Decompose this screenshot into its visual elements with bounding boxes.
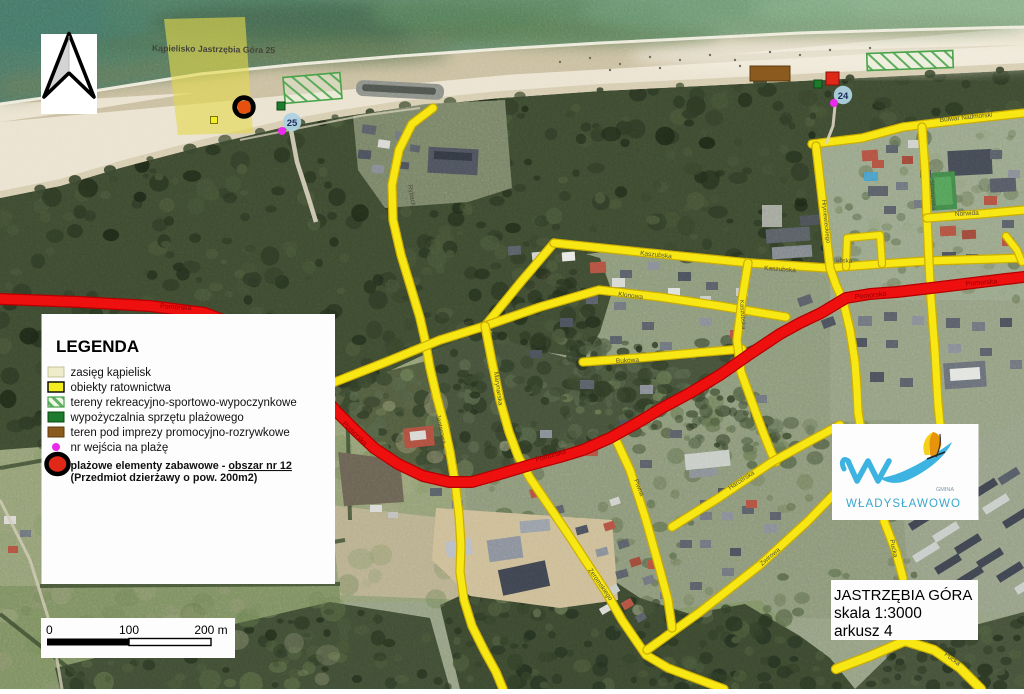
svg-text:skala 1:3000: skala 1:3000 (834, 605, 922, 622)
svg-text:zasięg kąpielisk: zasięg kąpielisk (71, 367, 152, 379)
svg-text:WŁADYSŁAWOWO: WŁADYSŁAWOWO (846, 498, 961, 510)
svg-text:JASTRZĘBIA GÓRA: JASTRZĘBIA GÓRA (834, 587, 972, 604)
svg-text:GMINA: GMINA (936, 487, 954, 493)
svg-text:100: 100 (119, 623, 139, 637)
svg-text:24: 24 (838, 91, 849, 102)
svg-text:LEGENDA: LEGENDA (56, 337, 139, 356)
svg-text:tereny rekreacyjno-sportowo-wy: tereny rekreacyjno-sportowo-wypoczynkowe (71, 397, 297, 409)
svg-text:200 m: 200 m (194, 623, 227, 637)
svg-text:0: 0 (46, 623, 53, 637)
svg-text:wypożyczalnia sprzętu plażoweg: wypożyczalnia sprzętu plażowego (70, 412, 244, 424)
svg-text:arkusz 4: arkusz 4 (834, 623, 893, 640)
svg-text:plażowe elementy zabawowe - ob: plażowe elementy zabawowe - obszar nr 12 (71, 460, 292, 472)
svg-text:obiekty ratownictwa: obiekty ratownictwa (71, 382, 172, 394)
svg-text:nr wejścia na plażę: nr wejścia na plażę (71, 442, 169, 454)
svg-text:25: 25 (287, 118, 298, 129)
svg-text:teren pod imprezy promocyjno-r: teren pod imprezy promocyjno-rozrywkowe (71, 427, 290, 439)
svg-text:(Przedmiot dzierżawy o pow. 20: (Przedmiot dzierżawy o pow. 200m2) (71, 472, 258, 484)
